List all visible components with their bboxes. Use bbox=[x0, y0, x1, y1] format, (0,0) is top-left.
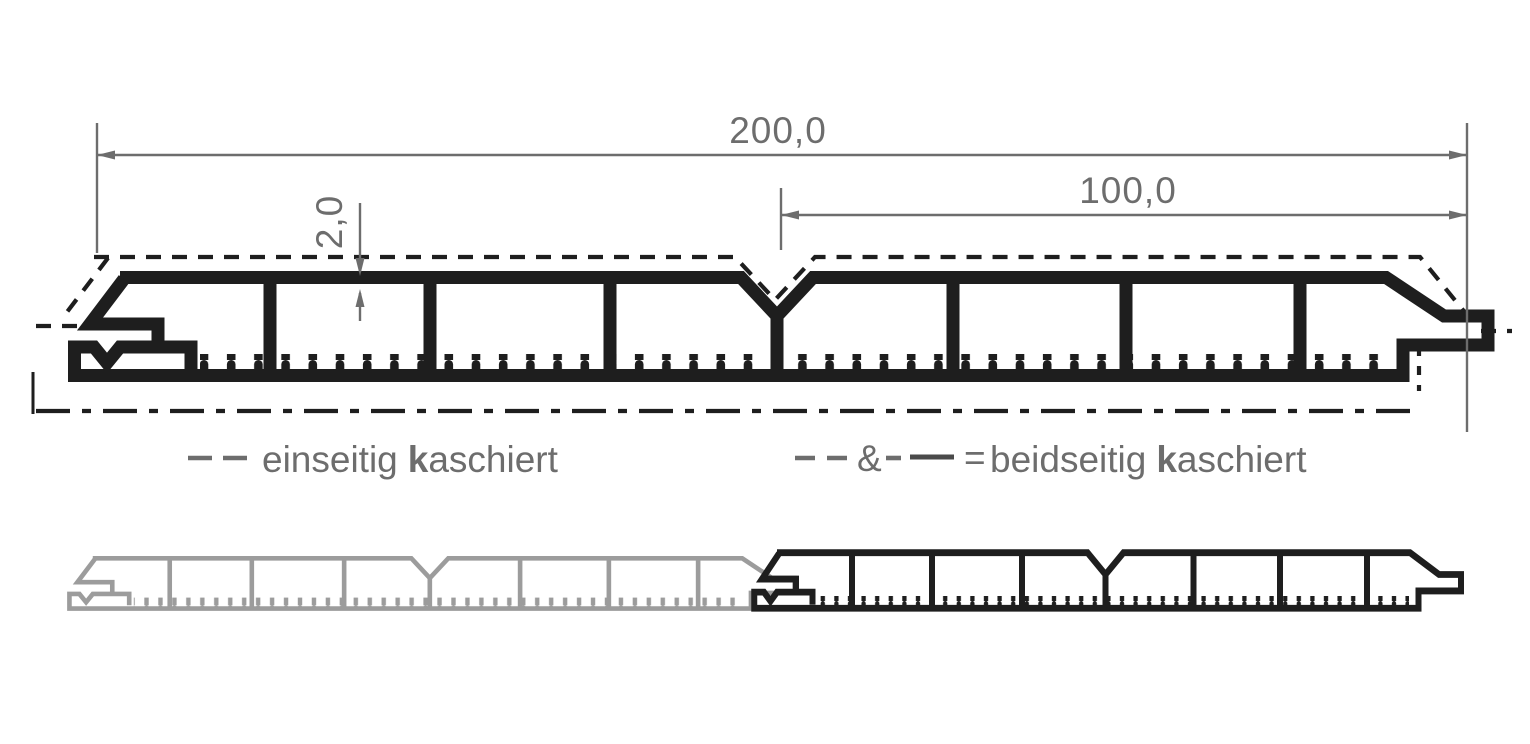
legend-word: einseitig bbox=[262, 439, 398, 480]
arrow-left-icon bbox=[781, 211, 799, 220]
legend-word-bold: k bbox=[1156, 439, 1177, 480]
legend-einseitig-text: einseitigkaschiert bbox=[262, 439, 559, 480]
legend-word: beidseitig bbox=[990, 439, 1146, 480]
legend-ampersand: & bbox=[857, 438, 882, 479]
mini-profile-gray-teeth bbox=[134, 598, 742, 608]
dimension-2-label: 2,0 bbox=[309, 195, 350, 249]
dimension-100-label: 100,0 bbox=[1079, 170, 1177, 211]
dimension-200-label: 200,0 bbox=[729, 110, 827, 151]
main-profile-teeth bbox=[200, 354, 1385, 374]
panel-profile-diagram: 200,0 100,0 2,0 einseitigkaschiert & = b… bbox=[0, 0, 1530, 744]
technical-drawing-page: 200,0 100,0 2,0 einseitigkaschiert & = b… bbox=[0, 0, 1530, 744]
legend-word: aschiert bbox=[1177, 439, 1307, 480]
legend-beidseitig-text: beidseitigkaschiert bbox=[990, 439, 1307, 480]
legend-word: = bbox=[964, 437, 986, 478]
legend-word: & bbox=[857, 438, 882, 479]
arrow-right-icon bbox=[1449, 211, 1467, 220]
legend-word-bold: k bbox=[408, 439, 429, 480]
arrow-right-icon bbox=[1449, 151, 1467, 160]
arrow-left-icon bbox=[97, 151, 115, 160]
arrow-up-icon bbox=[356, 289, 365, 307]
legend-word: aschiert bbox=[428, 439, 558, 480]
mini-profile-black-teeth bbox=[817, 596, 1409, 607]
legend-equals: = bbox=[964, 437, 986, 478]
